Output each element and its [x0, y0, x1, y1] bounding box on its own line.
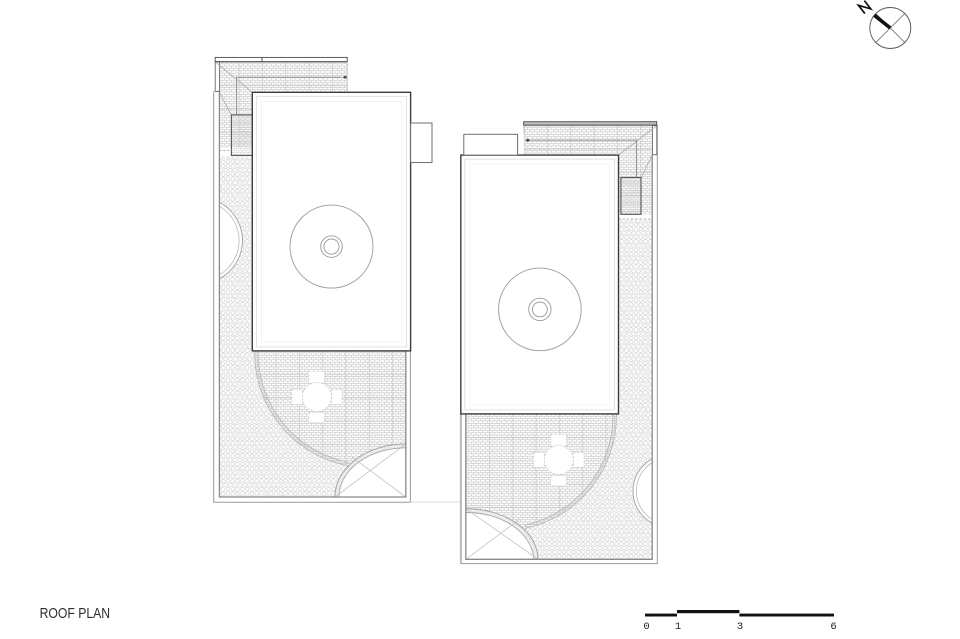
- svg-text:1: 1: [675, 621, 681, 633]
- svg-text:6: 6: [830, 621, 836, 633]
- svg-text:0: 0: [643, 621, 649, 633]
- svg-text:ROOF PLAN: ROOF PLAN: [40, 606, 111, 622]
- svg-text:3: 3: [737, 621, 743, 633]
